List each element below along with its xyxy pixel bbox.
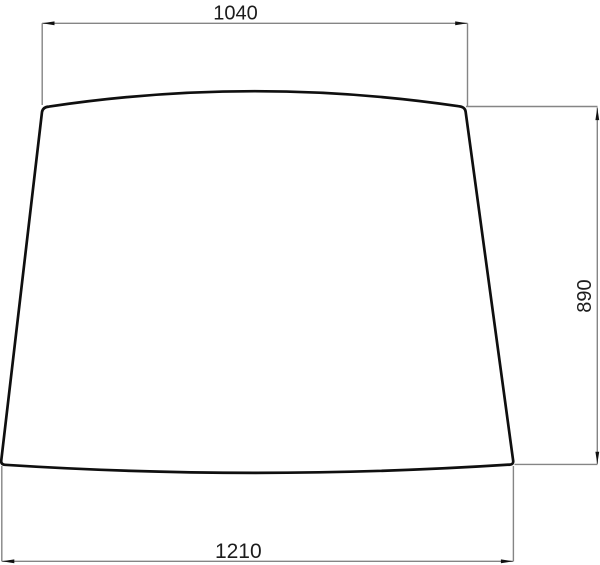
svg-text:1040: 1040	[213, 3, 258, 25]
svg-text:890: 890	[574, 279, 596, 312]
svg-text:1210: 1210	[215, 540, 262, 563]
